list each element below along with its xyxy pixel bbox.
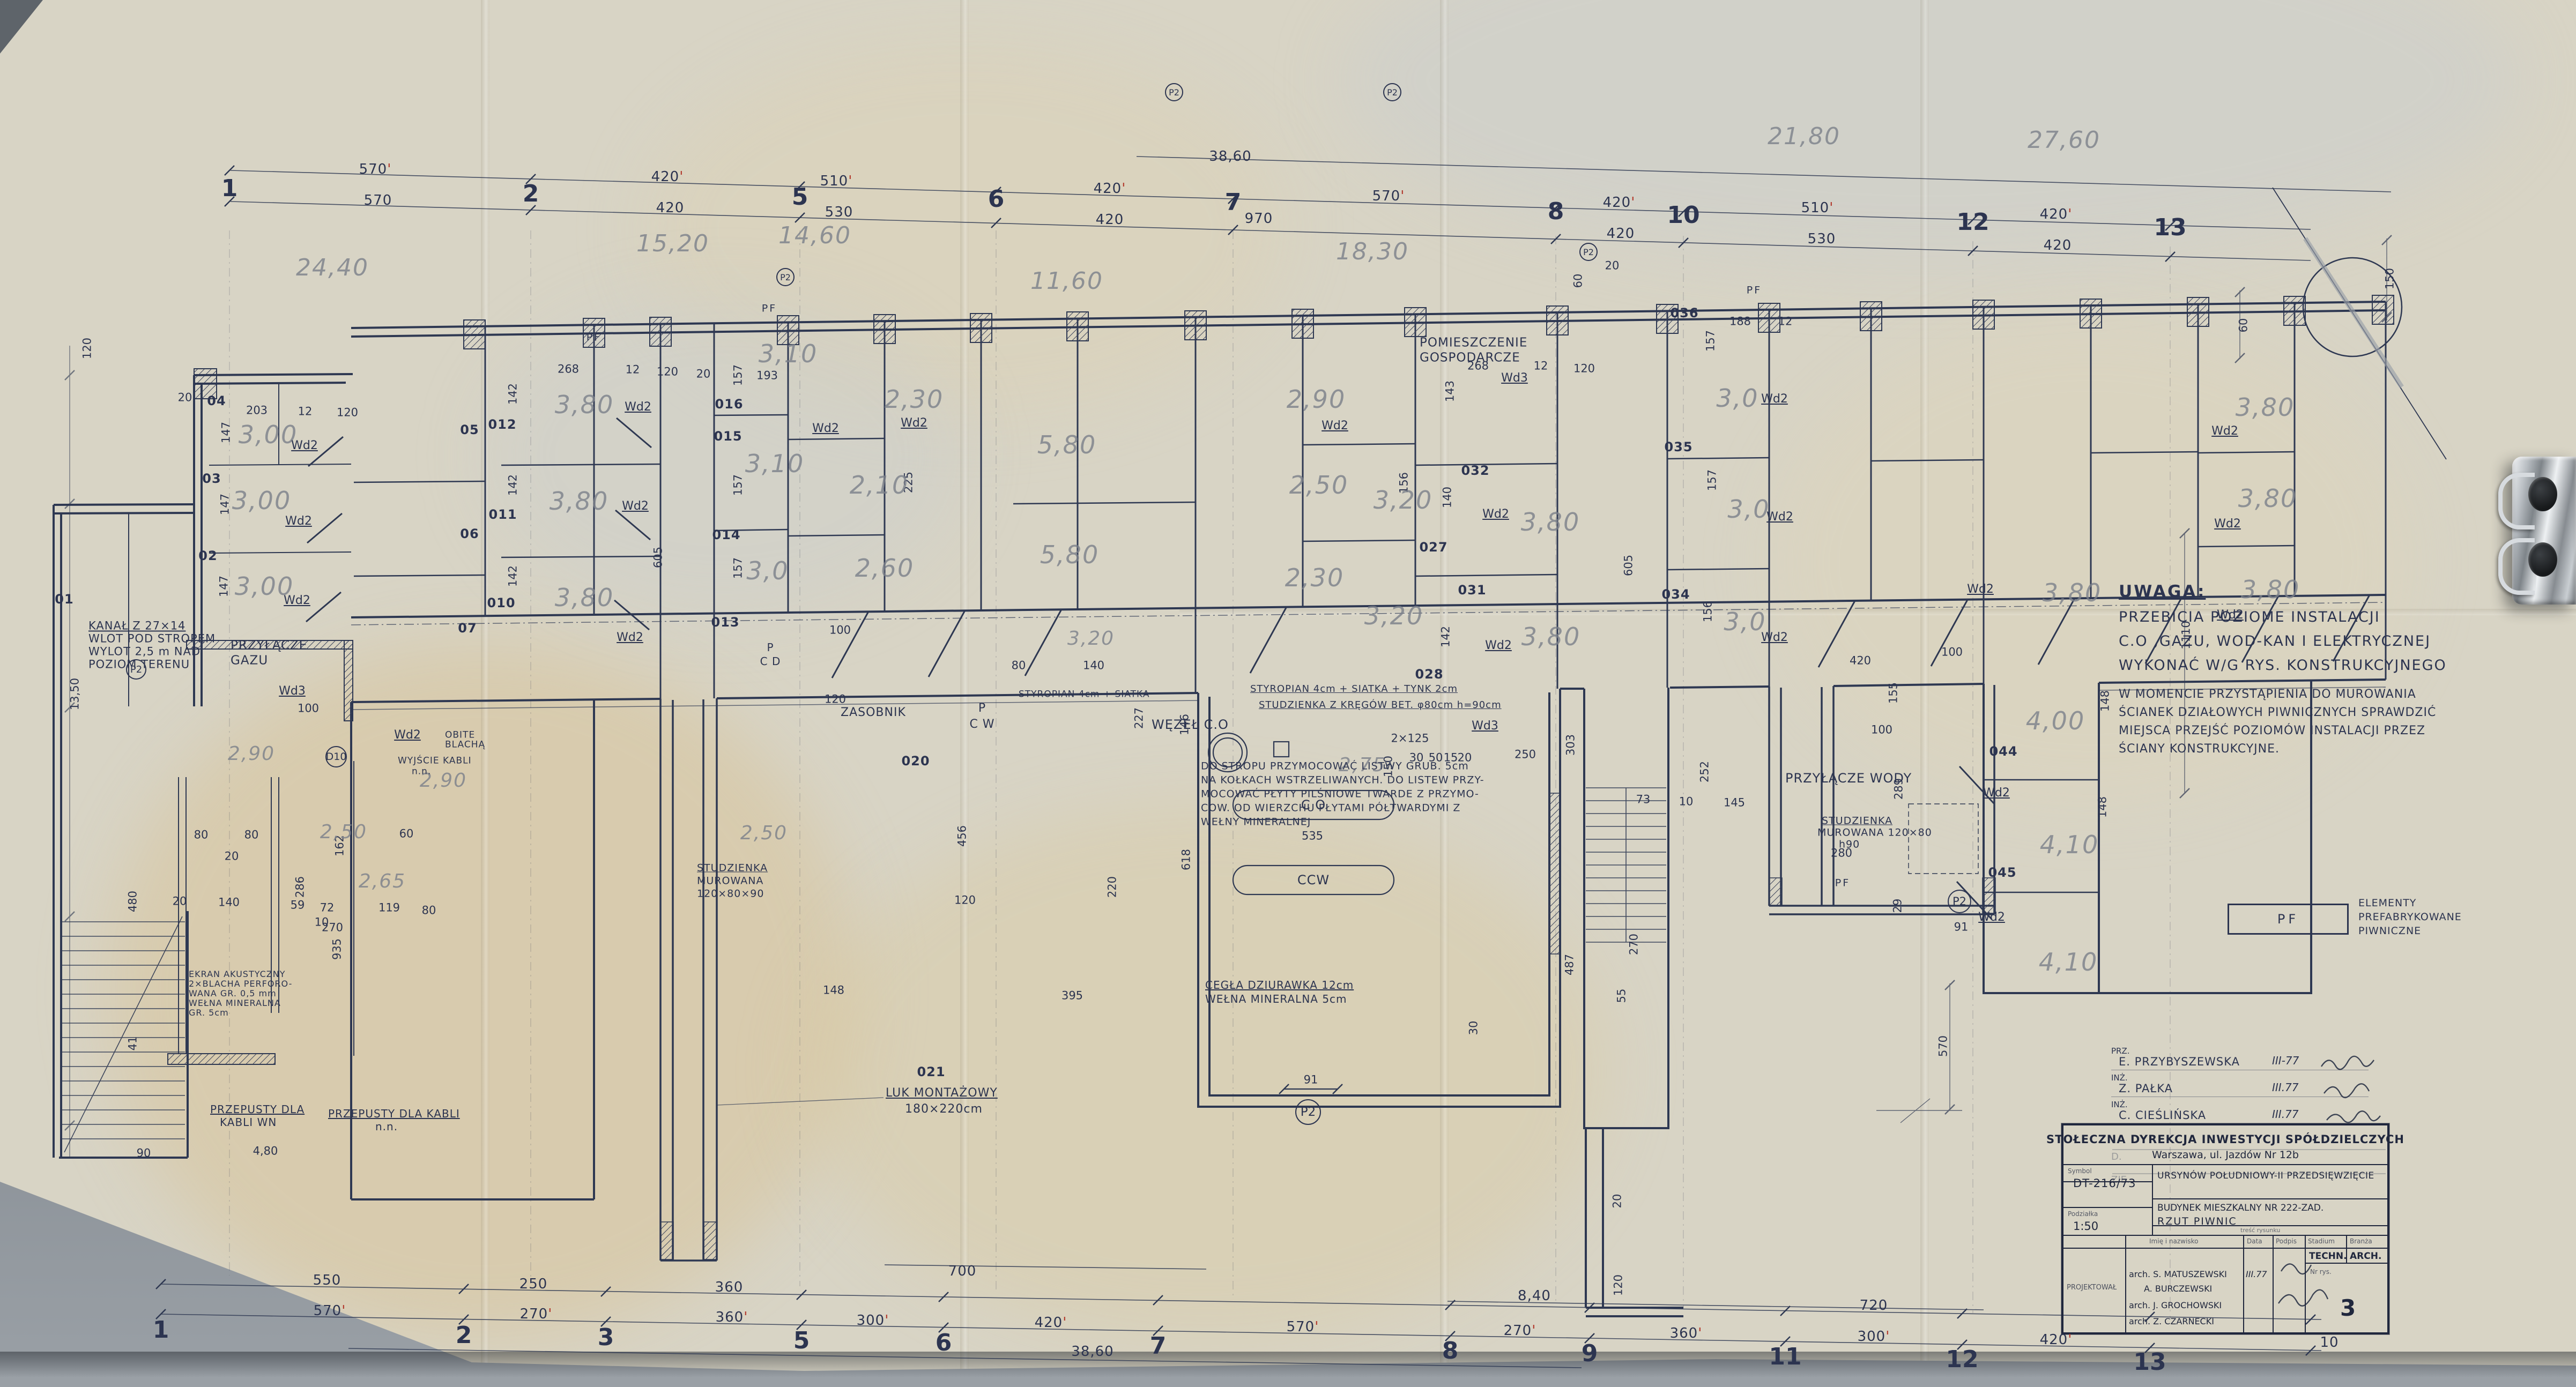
chain-dim-label: 530 <box>825 205 853 219</box>
axis-number: 1 <box>153 1318 169 1342</box>
axis-number: 3 <box>598 1326 614 1349</box>
callout-bubble-p2: P2 <box>1165 83 1183 101</box>
chain-dim-label: 510' <box>820 174 853 188</box>
axis-number: 2 <box>523 182 539 206</box>
chain-dim-label: 38,60 <box>1071 1345 1113 1359</box>
annotation-text: GOSPODARCZE <box>1420 352 1520 364</box>
annotation-text: OBITE <box>445 731 475 740</box>
annotation-text: GAZU <box>231 655 268 667</box>
clip-wire <box>2498 473 2535 530</box>
dim-label: 270 <box>1629 934 1640 955</box>
prefab-mark: PF <box>1835 878 1850 889</box>
annotation-text: STYROPIAN 4cm + SIATKA <box>1019 690 1150 699</box>
title-block: STOŁECZNA DYREKCJA INWESTYCJI SPÓŁDZIELC… <box>2061 1123 2389 1334</box>
dim-label: 286 <box>295 876 306 898</box>
annotation-text: h90 <box>1839 840 1860 850</box>
door-type-label: Wd2 <box>1967 584 1994 595</box>
chain-dim-label: 720 <box>1860 1299 1888 1313</box>
signature-role: PRZ. <box>2111 1046 2130 1056</box>
chain-dim-label: 420' <box>1094 182 1126 196</box>
door-type-label: Wd3 <box>1501 372 1528 384</box>
pencil-area-number: 2,30 <box>885 387 944 412</box>
door-type-label: Wd2 <box>617 632 643 644</box>
dim-label: 303 <box>1565 734 1577 756</box>
callout-bubble-p2: P2 <box>1383 83 1401 101</box>
callout-bubble-p2: P2 <box>1295 1099 1321 1125</box>
dim-label: 72 <box>320 903 335 914</box>
door-type-label: Wd2 <box>1766 511 1793 523</box>
axis-number: 13 <box>2133 1351 2166 1374</box>
room-number: 02 <box>198 549 217 562</box>
door-type-label: Wd2 <box>285 516 312 527</box>
col-sign: Podpis <box>2276 1237 2297 1245</box>
dim-label: 143 <box>1445 381 1456 402</box>
annotation-text: PRZYŁĄCZE WODY <box>1785 772 1912 785</box>
annotation-text: P <box>978 703 986 714</box>
scale-value: 1:50 <box>2073 1220 2098 1233</box>
prefab-mark: PF <box>587 333 602 343</box>
col-date: Data <box>2247 1237 2262 1245</box>
room-number: 032 <box>1461 464 1489 477</box>
pencil-area-number: 3,80 <box>2043 580 2102 605</box>
room-number: 014 <box>712 528 740 541</box>
signature-date: III.77 <box>2272 1081 2299 1094</box>
dim-label: 60 <box>399 829 414 840</box>
dim-label: 80 <box>194 830 209 841</box>
pencil-area-number: 18,30 <box>1336 240 1409 264</box>
axis-number: 13 <box>2154 216 2186 240</box>
design-date: III.77 <box>2246 1269 2267 1279</box>
room-number: 034 <box>1661 588 1690 601</box>
room-number: 045 <box>1988 866 2016 879</box>
uwaga-line: ŚCIANEK DZIAŁOWYCH PIWNICZNYCH SPRAWDZIĆ <box>2119 706 2447 719</box>
dim-label: 193 <box>756 370 778 382</box>
annotation-text: KANAŁ Z 27×14 <box>88 621 185 632</box>
pencil-area-number: 27,60 <box>2028 129 2100 152</box>
signature-date: III.77 <box>2272 1108 2299 1121</box>
symbol-value: DT-216/73 <box>2073 1177 2136 1190</box>
annotation-text: C D <box>760 656 781 667</box>
pencil-area-number: 2,50 <box>740 824 788 843</box>
pencil-area-number: 3,10 <box>745 451 804 476</box>
dim-label: 252 <box>1699 761 1711 782</box>
uwaga-line: C.O ,GAZU, WOD-KAN I ELEKTRYCZNEJ <box>2119 633 2447 650</box>
pencil-area-number: 2,65 <box>359 872 406 891</box>
sheet-label: Nr rys. <box>2310 1268 2332 1276</box>
door-type-label: Wd2 <box>1761 393 1788 405</box>
chain-dim-label: 420 <box>1096 213 1124 227</box>
dim-label: 91 <box>1954 922 1969 933</box>
dim-label: 935 <box>332 938 343 960</box>
dim-label: 12 <box>1534 361 1548 372</box>
axis-number: 11 <box>1769 1345 1801 1369</box>
dim-label: 20 <box>173 896 187 907</box>
uwaga-line: MIEJSCA PRZEJŚĆ POZIOMÓW INSTALACJI PRZE… <box>2119 724 2447 737</box>
pencil-area-number: 3,80 <box>2236 395 2295 420</box>
dim-label: 203 <box>246 405 268 416</box>
room-number: 03 <box>202 472 221 485</box>
axis-number: 5 <box>793 1329 810 1353</box>
project-name: URSYNÓW POŁUDNIOWY-II PRZEDSIĘWZIĘCIE <box>2157 1170 2374 1181</box>
axis-number: 6 <box>936 1331 952 1355</box>
blueprint-photo: UWAGA: PRZEBICIA POZIOME INSTALACJI C.O … <box>0 0 2576 1387</box>
room-number: 036 <box>1670 307 1698 319</box>
annotation-text: GR. 5cm <box>189 1009 229 1017</box>
dim-label: 12 <box>1778 316 1793 327</box>
chain-dim-label: 570' <box>1287 1320 1319 1334</box>
chain-dim-label: 270' <box>1504 1324 1536 1338</box>
col-name: Imię i nazwisko <box>2149 1237 2198 1245</box>
annotation-text: PRZYŁĄCZE <box>231 640 307 652</box>
door-type-label: Wd2 <box>1322 420 1348 432</box>
door-type-label: Wd2 <box>901 417 927 429</box>
dim-label: 395 <box>1061 990 1083 1002</box>
dim-label: 120 <box>1573 363 1595 375</box>
annotation-text: MUROWANA <box>697 876 763 886</box>
axis-number: 5 <box>792 185 808 209</box>
door-type-label: Wd2 <box>1983 787 2010 799</box>
dim-label: 456 <box>957 825 968 847</box>
sheet-number: 3 <box>2340 1295 2356 1321</box>
pencil-area-number: 21,80 <box>1768 125 1840 148</box>
legend-text: PREFABRYKOWANE PIWNICZNE <box>2358 910 2462 938</box>
prefab-mark: PF <box>1747 286 1762 296</box>
dim-label: 227 <box>1134 707 1145 729</box>
door-type-label: Wd2 <box>625 401 651 413</box>
callout-bubble-p2: P2 <box>126 659 146 680</box>
room-number: 07 <box>458 622 477 635</box>
axis-number: 12 <box>1956 211 1989 234</box>
axis-number: 8 <box>1442 1339 1459 1363</box>
annotation-text: EKRAN AKUSTYCZNY <box>189 970 286 979</box>
dim-label: 220 <box>1107 876 1118 898</box>
pencil-area-number: 5,80 <box>1037 432 1096 457</box>
dim-label: 157 <box>1705 330 1717 352</box>
axis-number: 1 <box>221 177 238 200</box>
pencil-area-number: 5,80 <box>1040 542 1099 567</box>
dim-label: 2×125 <box>1391 733 1429 744</box>
dim-label: 148 <box>2100 690 2111 712</box>
room-number: 031 <box>1458 584 1486 596</box>
drawing-title-sub: treść rysunku <box>2240 1227 2280 1234</box>
designer: arch. Z. CZARNECKI <box>2129 1316 2214 1326</box>
pencil-area-number: 3,0 <box>1727 497 1770 521</box>
annotation-text: NA KOŁKACH WSTRZELIWANYCH. DO LISTEW PRZ… <box>1201 775 1484 786</box>
annotation-text: WLOT POD STROPEM <box>88 633 216 645</box>
dim-label: 80 <box>244 830 259 841</box>
chain-dim-label: 570' <box>314 1304 346 1318</box>
dim-label: 60 <box>1573 274 1584 288</box>
annotation-text: KABLI WN <box>220 1117 277 1128</box>
dim-label: 157 <box>1707 469 1718 491</box>
door-type-label: Wd2 <box>2214 518 2241 530</box>
symbol-label: Symbol <box>2068 1167 2092 1175</box>
pencil-area-number: 4,10 <box>2040 832 2099 857</box>
chain-dim-label: 8,40 <box>1518 1289 1551 1303</box>
dim-label: 10 <box>315 917 329 928</box>
dim-label: 148 <box>2097 796 2109 818</box>
dim-label: 100 <box>1871 725 1892 736</box>
pencil-area-number: 3,80 <box>555 392 614 417</box>
dim-label: 157 <box>733 364 744 386</box>
annotation-text: C W <box>969 719 994 730</box>
dim-label: 1110 <box>2181 621 2192 649</box>
axis-number: 12 <box>1946 1348 1978 1371</box>
dim-label: 188 <box>1729 316 1751 327</box>
dim-label: 100 <box>298 703 319 714</box>
annotation-text: DO STROPU PRZYMOCOWAĆ LISTWY GRUB. 5cm <box>1201 762 1469 772</box>
chain-dim-label: 360' <box>716 1310 748 1324</box>
dim-label: 156 <box>1703 601 1714 622</box>
pencil-area-number: 2,60 <box>855 556 914 580</box>
dim-label: 119 <box>378 903 400 914</box>
chain-dim-label: 270' <box>520 1307 553 1321</box>
pencil-area-number: 11,60 <box>1030 270 1103 293</box>
dim-label: 30 <box>1468 1021 1480 1035</box>
room-number: 01 <box>55 593 73 606</box>
dim-label: 60 <box>2238 318 2250 333</box>
uwaga-line: W MOMENCIE PRZYSTĄPIENIA DO MUROWANIA <box>2119 688 2447 701</box>
callout-bubble-d10: D10 <box>325 746 347 767</box>
dim-label: 73 <box>1636 794 1651 806</box>
dim-label: 148 <box>823 985 844 996</box>
room-number: 044 <box>1989 745 2017 758</box>
room-number: 04 <box>207 394 226 407</box>
annotation-text: 180×220cm <box>905 1103 983 1115</box>
door-type-label: Wd3 <box>1472 720 1498 732</box>
uwaga-line: WYKONAĆ W/G RYS. KONSTRUKCYJNEGO <box>2119 657 2447 674</box>
pencil-area-number: 2,90 <box>1287 387 1346 412</box>
annotation-text: CCW <box>1297 874 1330 886</box>
binder-clip <box>2512 457 2576 605</box>
chain-dim-label: 570 <box>364 193 392 207</box>
annotation-text: STUDZIENKA <box>1822 816 1892 826</box>
annotation-text: ZASOBNIK <box>841 707 906 719</box>
dim-label: 150 <box>2385 268 2396 289</box>
annotation-text: STUDZIENKA Z KRĘGÓW BET. φ80cm h=90cm <box>1259 700 1502 710</box>
chain-dim-label: 420' <box>1035 1316 1067 1330</box>
annotation-text: LUK MONTAŻOWY <box>886 1087 998 1099</box>
signature-row: PRZ. E. PRZYBYSZEWSKA III-77 <box>2111 1046 2390 1073</box>
axis-number: 7 <box>1150 1334 1167 1358</box>
dim-label: 268 <box>558 364 579 375</box>
room-number: 020 <box>901 755 930 767</box>
chain-dim-label: 970 <box>1245 212 1273 226</box>
dim-label: 120 <box>337 407 358 419</box>
legend-symbol-box: PF <box>2228 904 2349 935</box>
annotation-text: WYLOT 2,5 m NAD <box>88 646 201 658</box>
room-number: 012 <box>488 418 516 431</box>
legend-text: ELEMENTY <box>2358 896 2462 910</box>
door-type-label: Wd3 <box>279 685 306 697</box>
dim-label: 12 <box>626 364 640 376</box>
dim-label: 155 <box>1888 682 1899 704</box>
annotation-text: C O <box>1301 799 1326 811</box>
dim-label: 80 <box>1012 660 1026 672</box>
dim-label: 142 <box>508 474 519 496</box>
chain-dim-label: 38,60 <box>1209 150 1251 163</box>
pencil-area-number: 14,60 <box>778 224 851 248</box>
door-type-label: Wd2 <box>2211 426 2238 437</box>
dim-label: 13,50 <box>70 678 81 710</box>
door-type-label: Wd2 <box>812 423 839 435</box>
chain-dim-label: 300' <box>857 1314 889 1328</box>
dim-label: 91 <box>1304 1075 1318 1086</box>
annotation-text: MOCOWAĆ PŁYTY PILŚNIOWE TWARDE Z PRZYMO- <box>1201 789 1479 800</box>
chain-dim-label: 420' <box>651 170 684 184</box>
dim-label: 120 <box>657 367 678 378</box>
dim-label: 41 <box>128 1036 139 1051</box>
signature-role: INŻ. <box>2111 1073 2128 1083</box>
pencil-area-number: 4,00 <box>2026 709 2085 733</box>
callout-bubble-p2: P2 <box>1948 890 1971 913</box>
door-type-label: Wd2 <box>291 440 318 452</box>
door-type-label: Wd2 <box>1761 632 1788 644</box>
door-type-label: Wd2 <box>394 729 421 741</box>
clip-wire <box>2498 538 2535 595</box>
door-type-label: Wd2 <box>1485 640 1512 652</box>
chain-dim-label: 360' <box>1670 1326 1703 1340</box>
pencil-area-number: 3,0 <box>1724 609 1766 634</box>
dim-label: 147 <box>220 494 231 515</box>
annotation-text: WEŁNA MINERALNA <box>189 999 281 1008</box>
dim-label: 80 <box>422 905 436 916</box>
pencil-area-number: 2,30 <box>1285 565 1344 590</box>
dim-label: 618 <box>1181 849 1192 870</box>
col-stage: Stadium <box>2308 1237 2335 1245</box>
door-type-label: Wd2 <box>622 501 649 512</box>
pencil-area-number: 3,80 <box>2241 577 2300 602</box>
signature-row: INŻ. Z. PAŁKA III.77 <box>2111 1073 2390 1100</box>
annotation-text: STUDZIENKA <box>697 863 768 874</box>
dim-label: 59 <box>291 900 305 911</box>
dim-label: 140 <box>1083 660 1104 672</box>
pencil-area-number: 3,00 <box>239 422 298 447</box>
pencil-area-number: 3,0 <box>746 558 789 583</box>
pencil-area-number: 3,20 <box>1067 629 1115 648</box>
pencil-area-number: 4,10 <box>2039 950 2098 974</box>
room-number: 05 <box>460 423 479 436</box>
annotation-text: 120×80×90 <box>697 889 764 899</box>
axis-number: 9 <box>1582 1342 1598 1366</box>
chain-dim-label: 570' <box>1372 189 1405 203</box>
annotation-text: n.n. <box>412 767 431 777</box>
room-number: 035 <box>1664 441 1692 453</box>
room-number: 016 <box>715 398 743 411</box>
annotation-text: BLACHĄ <box>445 741 485 750</box>
room-number: 021 <box>917 1065 945 1078</box>
pencil-area-number: 2,90 <box>228 744 275 764</box>
pencil-area-number: 3,80 <box>550 489 608 513</box>
door-type-label: Wd2 <box>1978 912 2005 923</box>
dim-label: 147 <box>221 422 232 443</box>
dim-label: 120 <box>1613 1274 1624 1296</box>
callout-bubble-p2: P2 <box>1579 243 1598 261</box>
pencil-area-number: 3,20 <box>1364 603 1423 628</box>
pencil-area-number: 15,20 <box>636 232 709 256</box>
dim-label: 420 <box>1850 655 1871 667</box>
signature-name: Z. PAŁKA <box>2119 1082 2173 1095</box>
dim-label: 570 <box>1938 1035 1949 1057</box>
annotation-text: WYJŚCIE KABLI <box>398 757 472 766</box>
annotation-text: P <box>767 642 774 653</box>
org-name: STOŁECZNA DYREKCJA INWESTYCJI SPÓŁDZIELC… <box>2046 1133 2404 1146</box>
chain-dim-label: 420' <box>2040 1333 2073 1347</box>
dim-label: 145 <box>1724 797 1745 809</box>
pencil-area-number: 3,80 <box>555 585 614 610</box>
axis-number: 2 <box>456 1324 472 1347</box>
chain-dim-label: 360 <box>715 1280 744 1294</box>
room-number: 010 <box>487 596 515 609</box>
org-address: Warszawa, ul. Jazdów Nr 12b <box>2152 1149 2299 1161</box>
dim-label: 20 <box>225 851 239 862</box>
signature-role: INŻ. <box>2111 1100 2128 1109</box>
room-number: 027 <box>1419 541 1447 554</box>
annotation-text: 2×BLACHA PERFORO- <box>189 980 292 988</box>
dim-label: 487 <box>1564 954 1576 975</box>
room-number: 028 <box>1415 668 1443 681</box>
dim-label: 29 <box>1892 899 1904 913</box>
axis-number: 10 <box>1667 204 1699 227</box>
annotation-text: WEŁNY MINERALNEJ <box>1201 817 1311 827</box>
door-type-label: Wd2 <box>284 595 310 607</box>
annotation-text: PRZEPUSTY DLA KABLI <box>328 1108 460 1119</box>
annotation-text: CEGŁA DZIURAWKA 12cm <box>1205 980 1354 990</box>
uwaga-line: ŚCIANY KONSTRUKCYJNE. <box>2119 742 2447 756</box>
dim-label: 90 <box>137 1148 151 1159</box>
chain-dim-label: 510' <box>1801 201 1834 215</box>
dim-label: 157 <box>733 557 744 579</box>
annotation-text: WĘZEŁ C.O <box>1152 718 1229 731</box>
chain-dim-label: 10 <box>2320 1336 2339 1349</box>
chain-dim-label: 300' <box>1858 1330 1890 1344</box>
signature-name: E. PRZYBYSZEWSKA <box>2119 1055 2240 1068</box>
room-number: 011 <box>488 508 517 521</box>
uwaga-line: PRZEBICIA POZIOME INSTALACJI <box>2119 609 2447 625</box>
pencil-area-number: 3,80 <box>1521 510 1580 534</box>
dim-label: 142 <box>1441 626 1452 647</box>
signature-date: III-77 <box>2272 1054 2299 1067</box>
building-name: BUDYNEK MIESZKALNY NR 222-ZAD. <box>2157 1203 2323 1213</box>
axis-number: 8 <box>1548 200 1564 223</box>
chain-dim-label: 700 <box>948 1264 977 1278</box>
annotation-text: WANA GR. 0,5 mm <box>189 989 277 998</box>
annotation-text: WEŁNA MINERALNA 5cm <box>1205 994 1347 1004</box>
prefab-mark: PF <box>762 304 777 314</box>
dim-label: 12 <box>298 406 313 417</box>
dim-label: 140 <box>1442 487 1453 508</box>
dim-label: 605 <box>653 547 664 568</box>
col-branch: Branża <box>2350 1237 2372 1245</box>
dim-label: 20 <box>1612 1194 1623 1209</box>
dim-label: 480 <box>128 891 139 912</box>
uwaga-note: UWAGA: PRZEBICIA POZIOME INSTALACJI C.O … <box>2119 582 2447 756</box>
dim-label: 142 <box>508 565 519 587</box>
room-number: 015 <box>714 430 742 443</box>
dim-label: 147 <box>219 576 230 597</box>
signature-name: C. CIEŚLIŃSKA <box>2119 1109 2206 1122</box>
door-type-label: Wd2 <box>2217 609 2244 621</box>
pencil-area-number: 3,20 <box>1374 488 1432 512</box>
dim-label: 120 <box>954 895 976 906</box>
chain-dim-label: 250 <box>519 1277 548 1291</box>
stage-value: TECHN. <box>2309 1251 2347 1262</box>
room-number: 06 <box>460 527 479 540</box>
annotation-text: POMIESZCZENIE <box>1420 337 1527 349</box>
designed-label: PROJEKTOWAŁ <box>2067 1284 2117 1292</box>
axis-number: 6 <box>988 188 1005 211</box>
dim-label: 100 <box>1941 647 1963 658</box>
